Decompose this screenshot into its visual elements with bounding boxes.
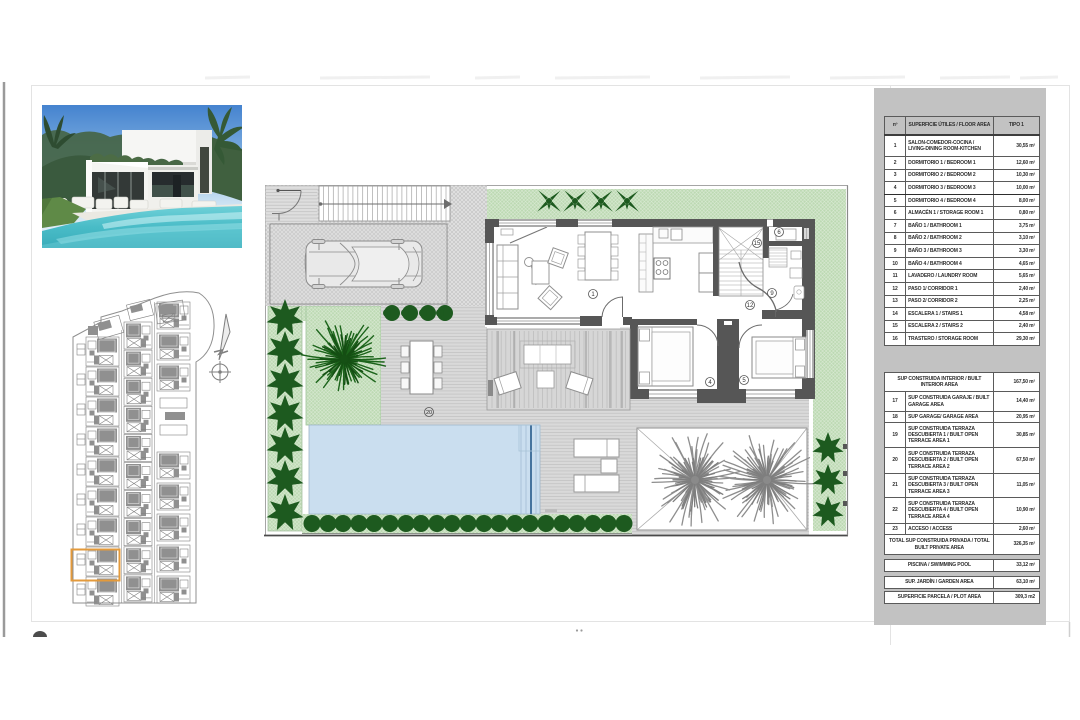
svg-text:12: 12 [747, 303, 754, 309]
svg-text:20: 20 [426, 410, 432, 416]
svg-text:15: 15 [754, 241, 761, 247]
